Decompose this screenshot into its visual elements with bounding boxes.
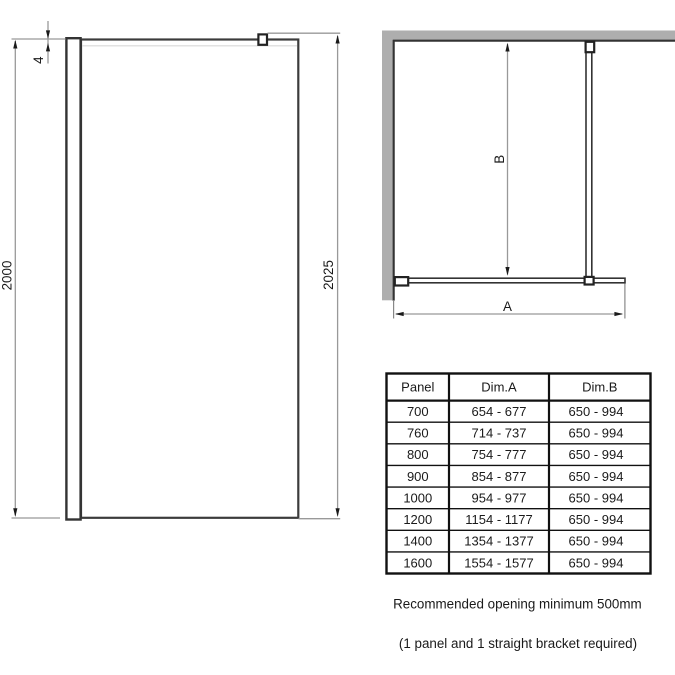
svg-text:1554 - 1577: 1554 - 1577 (464, 555, 533, 570)
svg-text:650 - 994: 650 - 994 (569, 534, 624, 549)
svg-text:B: B (492, 155, 507, 164)
svg-text:Recommended opening minimum 50: Recommended opening minimum 500mm (393, 596, 642, 611)
svg-text:854 - 877: 854 - 877 (472, 469, 527, 484)
svg-text:650 - 994: 650 - 994 (569, 469, 624, 484)
svg-text:Panel: Panel (401, 380, 434, 395)
svg-text:650 - 994: 650 - 994 (569, 512, 624, 527)
svg-text:654 - 677: 654 - 677 (472, 404, 527, 419)
svg-text:4: 4 (31, 56, 46, 64)
svg-text:650 - 994: 650 - 994 (569, 404, 624, 419)
svg-text:954 - 977: 954 - 977 (472, 491, 527, 506)
svg-text:900: 900 (407, 469, 429, 484)
svg-text:1600: 1600 (403, 555, 432, 570)
svg-text:650 - 994: 650 - 994 (569, 555, 624, 570)
svg-text:650 - 994: 650 - 994 (569, 426, 624, 441)
svg-text:650 - 994: 650 - 994 (569, 491, 624, 506)
svg-text:700: 700 (407, 404, 429, 419)
svg-text:Dim.A: Dim.A (481, 380, 517, 395)
svg-text:1354 - 1377: 1354 - 1377 (464, 534, 533, 549)
svg-text:1000: 1000 (403, 491, 432, 506)
svg-text:760: 760 (407, 426, 429, 441)
svg-text:Dim.B: Dim.B (582, 380, 617, 395)
svg-text:650 - 994: 650 - 994 (569, 447, 624, 462)
svg-text:1400: 1400 (403, 534, 432, 549)
svg-text:714 - 737: 714 - 737 (472, 426, 527, 441)
svg-text:(1 panel and 1 straight bracke: (1 panel and 1 straight bracket required… (399, 636, 637, 651)
svg-text:A: A (503, 299, 512, 314)
svg-text:800: 800 (407, 447, 429, 462)
svg-text:1200: 1200 (403, 512, 432, 527)
svg-text:1154 - 1177: 1154 - 1177 (465, 512, 532, 527)
svg-text:2000: 2000 (0, 261, 14, 291)
svg-text:2025: 2025 (321, 260, 336, 290)
svg-text:754 - 777: 754 - 777 (472, 447, 527, 462)
